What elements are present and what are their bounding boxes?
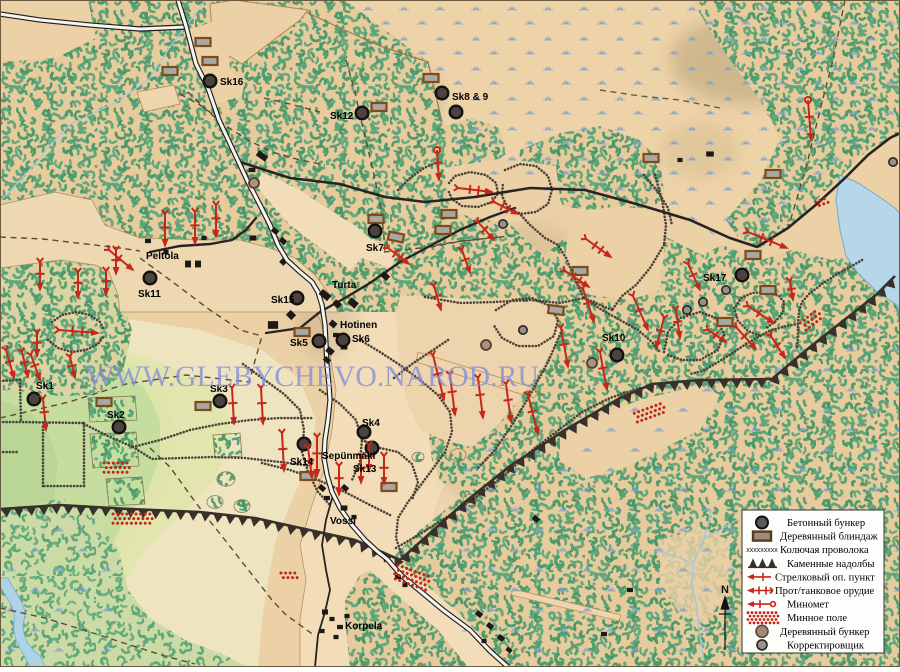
svg-text:Бетонный бункер: Бетонный бункер (787, 518, 865, 529)
svg-text:Sk15: Sk15 (271, 295, 295, 306)
svg-text:Sepünmäki: Sepünmäki (322, 451, 376, 462)
svg-text:Sk5: Sk5 (290, 338, 308, 349)
svg-text:Hotinen: Hotinen (340, 320, 377, 331)
svg-text:Vossi: Vossi (330, 516, 356, 527)
svg-text:Стрелковый оп. пункт: Стрелковый оп. пункт (775, 572, 875, 583)
svg-text:Turta: Turta (332, 280, 357, 291)
svg-text:Sk14: Sk14 (290, 457, 314, 468)
svg-text:Sk12: Sk12 (330, 111, 354, 122)
svg-text:Korpela: Korpela (345, 621, 383, 632)
svg-text:Peltola: Peltola (146, 251, 179, 262)
svg-text:xxxxxxxxx: xxxxxxxxx (746, 547, 778, 554)
svg-text:Минное поле: Минное поле (787, 613, 847, 624)
svg-text:Деревянный бункер: Деревянный бункер (780, 627, 869, 638)
svg-text:Sk10: Sk10 (602, 333, 626, 344)
svg-text:Sk2: Sk2 (107, 410, 125, 421)
svg-text:Sk13: Sk13 (353, 464, 377, 475)
svg-text:Sk7: Sk7 (366, 243, 384, 254)
svg-text:Прот/танковое орудие: Прот/танковое орудие (775, 586, 875, 597)
svg-text:Деревянный блиндаж: Деревянный блиндаж (780, 532, 878, 543)
svg-text:Каменные надолбы: Каменные надолбы (787, 559, 875, 570)
svg-text:Sk16: Sk16 (220, 77, 244, 88)
svg-text:Миномет: Миномет (787, 600, 829, 611)
svg-text:N: N (721, 584, 729, 596)
svg-text:Корректировщик: Корректировщик (787, 640, 865, 651)
svg-text:WWW.GLEBYCHEVO.NAROD.RU: WWW.GLEBYCHEVO.NAROD.RU (230, 660, 683, 667)
svg-text:Sk6: Sk6 (352, 334, 370, 345)
svg-text:Колючая проволока: Колючая проволока (780, 545, 869, 556)
svg-text:Sk8 & 9: Sk8 & 9 (452, 92, 489, 103)
svg-text:Sk4: Sk4 (362, 418, 380, 429)
svg-text:Sk11: Sk11 (138, 289, 161, 300)
svg-text:Sk17: Sk17 (703, 273, 727, 284)
svg-text:WWW.GLEBYCHEVO.NAROD.RU: WWW.GLEBYCHEVO.NAROD.RU (86, 360, 539, 393)
svg-text:Sk1: Sk1 (36, 381, 54, 392)
